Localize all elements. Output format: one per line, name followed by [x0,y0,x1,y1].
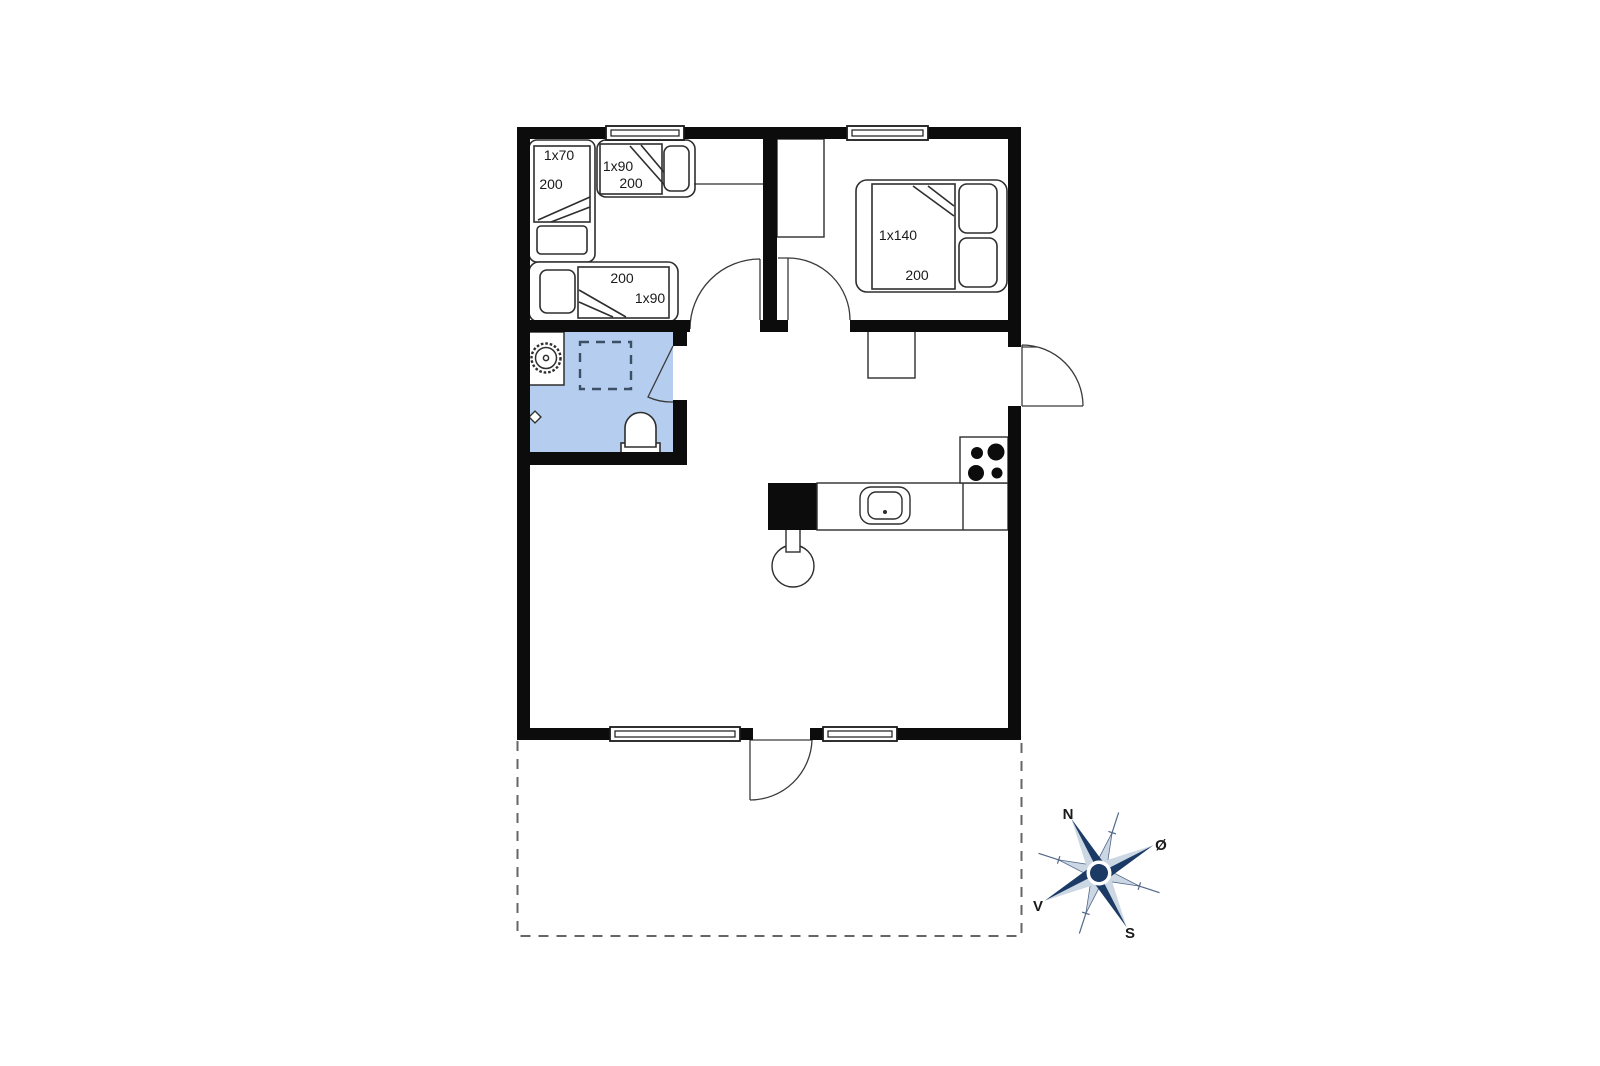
bed1x90t-length-label: 200 [619,175,643,191]
bed1x90b-length-label: 200 [610,270,634,286]
bathroom-sink-unit [528,332,564,385]
floorplan-canvas: 1x70 200 1x90 200 200 1x90 1x140 200 [0,0,1600,1066]
compass-west-label: V [1033,898,1043,915]
wall-bedrooms-bottom-right [850,320,1008,332]
bedroom2-wardrobe [777,139,824,237]
hall-cabinet [868,328,915,378]
wall-bathroom-bottom [517,452,687,465]
wood-stove [768,483,817,530]
window-top-2 [847,126,928,140]
bedroom1-door [690,259,760,329]
wall-top [517,127,1021,139]
compass-south-label: S [1125,925,1135,942]
wall-right-lower [1008,406,1021,740]
compass-north-label: N [1063,806,1074,823]
wall-hall-stub [760,320,788,332]
compass-rose: N Ø S V [1017,791,1181,955]
wall-left [517,127,530,740]
bed1x90t-width-label: 1x90 [603,158,634,174]
window-top-1 [606,126,684,140]
wall-bedroom-divider [763,139,777,320]
window-bottom-2 [823,727,897,741]
stove-pipe [786,529,800,552]
entrance-door-east [1022,345,1083,406]
compass-east-label: Ø [1155,837,1167,854]
bed1x140-length-label: 200 [905,267,929,283]
bedroom2-furniture [777,139,1007,292]
wall-bottom-1 [517,728,610,740]
bed1x70-width-label: 1x70 [544,147,575,163]
bed1x90b-width-label: 1x90 [635,290,666,306]
wall-bedrooms-bottom-left [517,320,690,332]
bed1x70-length-label: 200 [539,176,563,192]
wall-bottom-stub-r [810,728,823,740]
entrance-door-south [750,740,812,800]
wall-right-upper [1008,127,1021,347]
bed1x140-width-label: 1x140 [879,227,917,243]
window-bottom-1 [610,727,740,741]
terrace-outline [518,741,1022,936]
bedroom2-door [778,258,850,320]
wall-bottom-2 [897,728,1021,740]
living-room-items [768,328,1008,587]
kitchen-sink [860,487,910,524]
wall-bathroom-right-top [673,332,687,346]
floorplan-drawing: 1x70 200 1x90 200 200 1x90 1x140 200 [0,0,1600,1066]
wall-bottom-stub-l [740,728,753,740]
